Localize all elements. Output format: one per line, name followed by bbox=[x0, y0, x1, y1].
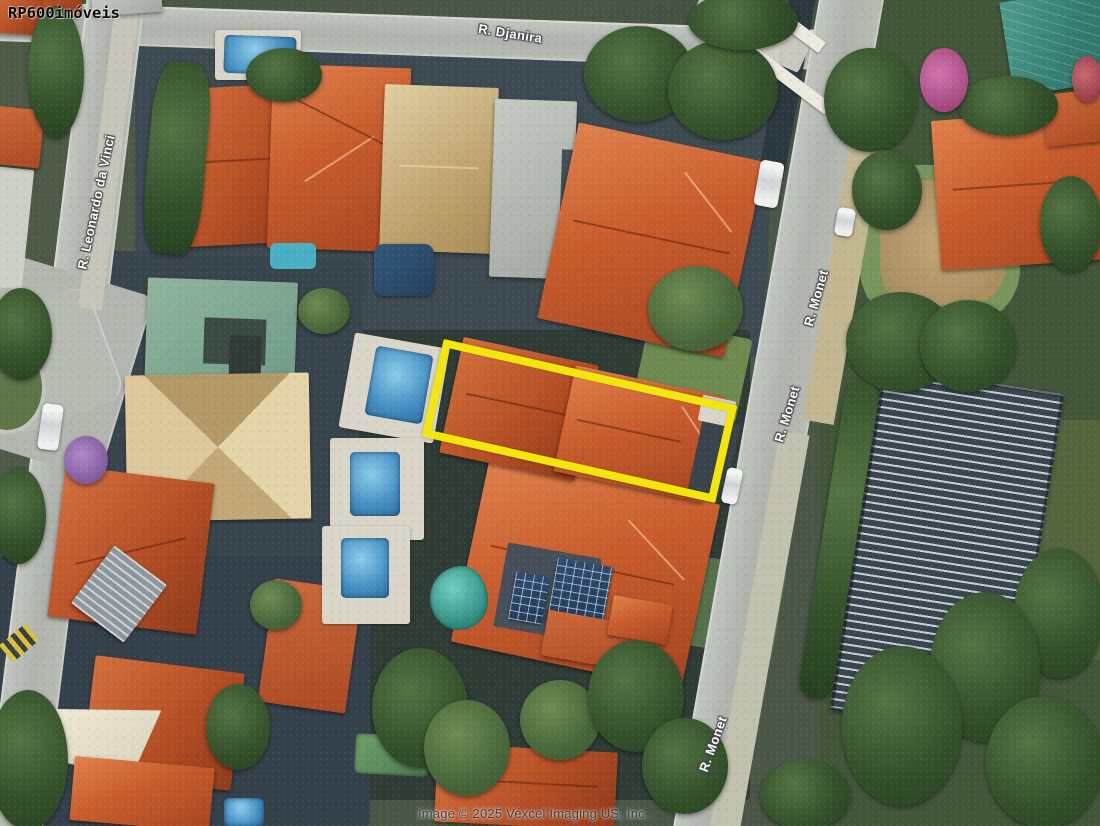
roof-ridge bbox=[399, 164, 479, 169]
tree bbox=[668, 40, 778, 140]
tree bbox=[424, 700, 510, 796]
swimming-pool bbox=[224, 798, 264, 826]
kidney-pool bbox=[430, 566, 488, 630]
tree bbox=[1040, 176, 1100, 272]
agency-watermark: RP600imóveis bbox=[8, 4, 120, 22]
roof-ridge bbox=[304, 136, 375, 183]
roof-ridge bbox=[291, 96, 390, 148]
tree bbox=[852, 150, 922, 230]
swimming-pool bbox=[364, 345, 433, 424]
tree bbox=[206, 684, 270, 770]
bougainvillea-tree bbox=[920, 48, 968, 112]
garden-bushes bbox=[298, 288, 350, 334]
small-pool bbox=[270, 243, 316, 269]
garden-bushes bbox=[250, 580, 302, 630]
imagery-attribution: Image © 2025 Vexcel Imaging US, Inc. bbox=[418, 806, 649, 821]
tree bbox=[246, 48, 322, 102]
bougainvillea-tree bbox=[64, 436, 108, 484]
tree bbox=[842, 646, 962, 806]
tree bbox=[986, 696, 1100, 826]
tree bbox=[958, 76, 1058, 136]
garden-bushes bbox=[648, 266, 743, 351]
roof-ridge bbox=[628, 519, 686, 581]
tree bbox=[824, 48, 916, 152]
satellite-map[interactable]: R. Djanira R. Leonardo da Vinci R. Monet… bbox=[0, 0, 1100, 826]
flowering-tree bbox=[1072, 56, 1100, 102]
roof-ridge bbox=[683, 171, 731, 232]
tree bbox=[28, 6, 84, 138]
tree bbox=[760, 760, 850, 826]
house-roof bbox=[379, 84, 499, 254]
house-roof bbox=[69, 756, 214, 826]
roof-ridge bbox=[573, 219, 730, 254]
swimming-pool bbox=[350, 452, 400, 516]
tree bbox=[920, 300, 1016, 392]
swimming-pool bbox=[341, 538, 389, 598]
covered-spa bbox=[374, 244, 434, 296]
